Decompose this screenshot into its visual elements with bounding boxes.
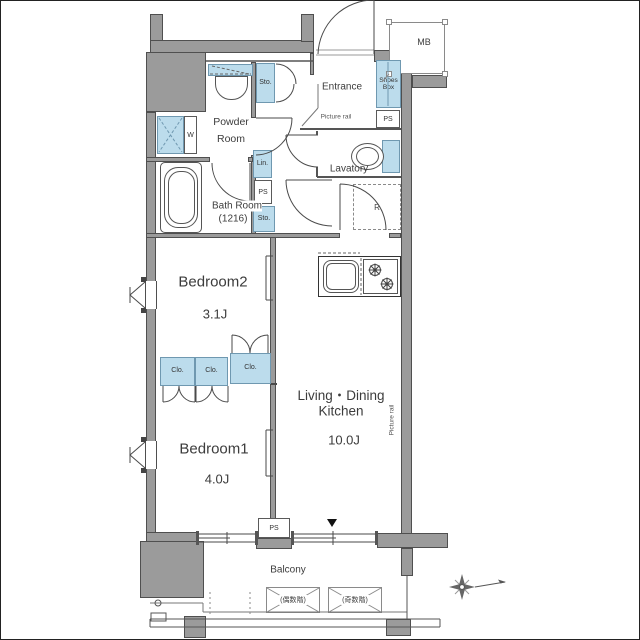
window-post — [141, 308, 146, 313]
room-label-powder-2: Room — [217, 133, 245, 145]
window-post — [291, 531, 294, 545]
balcony-dashed-marks — [210, 592, 250, 614]
kitchen-dashed-lines — [318, 253, 361, 295]
entrance-door-arc — [318, 0, 374, 54]
room-label-ldk-1: Living・Dining — [297, 384, 384, 404]
window-post — [375, 531, 378, 545]
room-label-powder-1: Powder — [213, 116, 249, 128]
room-label-bedroom1: Bedroom1 — [179, 441, 248, 458]
corridor-door-arc — [286, 180, 332, 226]
window-post — [196, 531, 199, 545]
window-bedroom2-left — [130, 282, 145, 308]
closet3-door-arcs — [232, 335, 268, 353]
room-label-lavatory: Lavatory — [330, 164, 368, 175]
balcony-mark-even: (偶数階) — [279, 595, 307, 605]
sliding-door-bedroom1 — [266, 430, 273, 476]
room-label-ldk-2: Kitchen — [318, 404, 363, 419]
compass-icon — [449, 574, 506, 600]
floor-plan: Sto. Shoes Box W Lin. PS Sto. Clo. Clo. … — [0, 0, 640, 640]
lavatory-door-arc — [286, 135, 318, 167]
room-label-balcony: Balcony — [270, 565, 306, 576]
room-size-bedroom2: 3.1J — [203, 307, 228, 322]
balcony-detail-box — [151, 613, 166, 621]
vanity-mirror-lines — [210, 66, 251, 74]
balcony-mark-odd: (奇数階) — [341, 595, 369, 605]
room-label-bath-2: (1216) — [219, 214, 248, 225]
closet1-door-arcs — [163, 386, 195, 402]
washer-cross-lines — [159, 118, 182, 152]
window-post — [141, 277, 146, 282]
room-label-entrance: Entrance — [322, 82, 362, 93]
entrance-step-line — [302, 84, 318, 126]
stove-burner-icon — [369, 264, 382, 277]
closet2-door-arcs — [196, 386, 228, 402]
window-post — [141, 468, 146, 473]
picture-rail-label-ldk: Picture rail — [389, 405, 396, 436]
picture-rail-label-hall: Picture rail — [321, 114, 352, 121]
storage-top-door-arcs — [276, 64, 296, 102]
plan-linework — [0, 0, 640, 640]
entrance-threshold — [316, 50, 374, 55]
hall-ldk-door-arc — [340, 184, 386, 230]
window-bedroom1-left — [130, 442, 145, 468]
window-post — [141, 437, 146, 442]
room-label-bath-1: Bath Room — [212, 201, 262, 212]
balcony-railing — [150, 619, 440, 627]
window-bedroom1-south — [198, 532, 257, 544]
meter-box-label: MB — [417, 37, 431, 47]
powder-room-door-arc — [256, 118, 292, 155]
sliding-door-bedroom2 — [266, 256, 273, 300]
room-size-ldk: 10.0J — [328, 433, 360, 448]
evacuation-marker — [327, 519, 337, 527]
bath-door-arc — [212, 163, 250, 201]
stove-burner-icon — [381, 278, 394, 291]
window-post — [255, 531, 258, 545]
window-ldk-south — [293, 531, 377, 545]
room-size-bedroom1: 4.0J — [205, 472, 230, 487]
room-label-bedroom2: Bedroom2 — [178, 274, 247, 291]
